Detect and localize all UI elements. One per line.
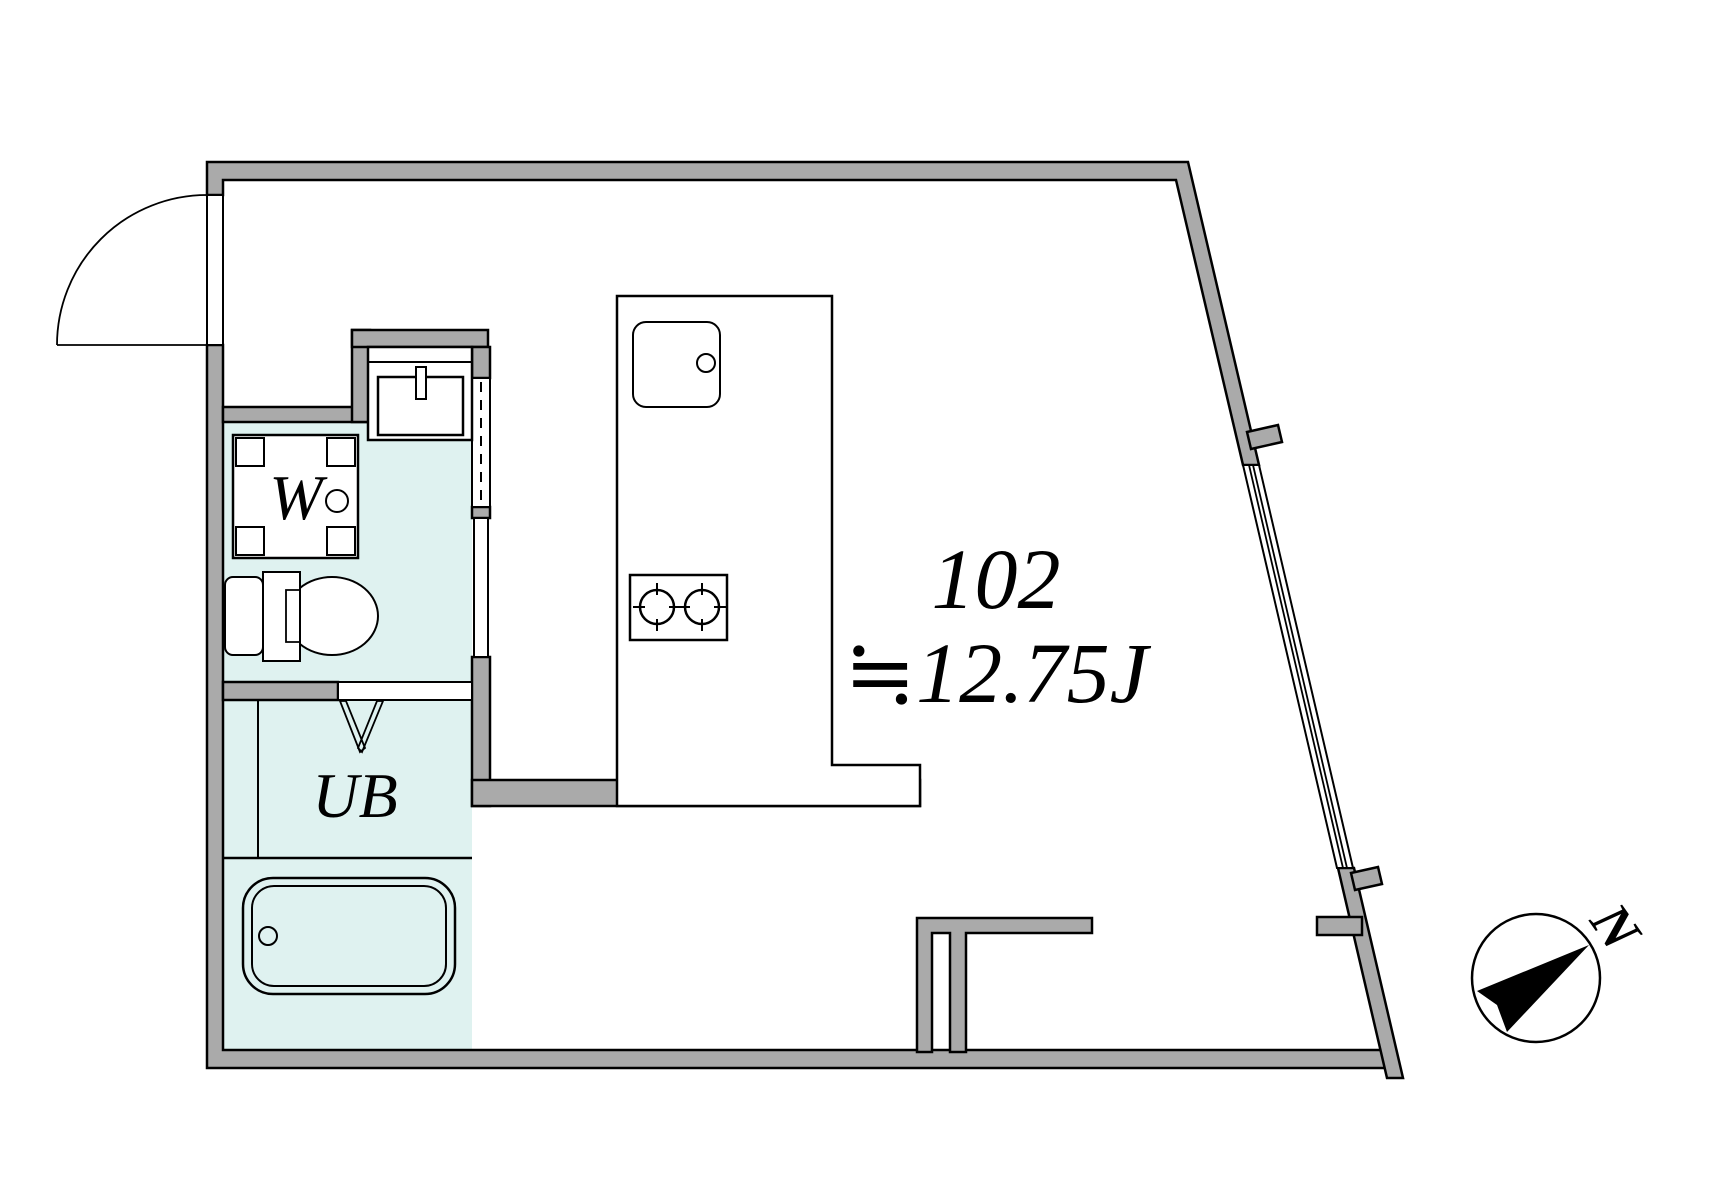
washroom-east-wall-upper [472, 347, 490, 378]
vanity-faucet [416, 367, 426, 399]
door-swing-arc [57, 195, 207, 345]
washer-pan-corner [236, 438, 264, 466]
lower-diagonal-wall [1338, 868, 1403, 1078]
toilet-ub-divider-wall [223, 682, 338, 700]
floorplan-canvas: W UB [0, 0, 1730, 1189]
washer-pan-corner [327, 527, 355, 555]
washroom-top-band-wall [223, 407, 370, 422]
compass-north-label: N [1577, 892, 1653, 964]
washer-drain-icon [326, 490, 348, 512]
window-pane-line [1249, 465, 1343, 868]
stove-burner-icon [640, 590, 674, 624]
toilet-seat-base [263, 572, 300, 661]
kitchen-island [617, 296, 920, 806]
door-panel [207, 195, 223, 345]
sliding-window [1243, 465, 1353, 868]
kitchen-faucet-icon [697, 354, 715, 372]
unit-number-label: 102 [932, 531, 1061, 627]
two-burner-stove [630, 575, 727, 640]
washroom-doorway [474, 518, 488, 657]
compass: N [1472, 892, 1653, 1042]
washroom-openings [472, 378, 490, 657]
vanity-top-wall [352, 330, 488, 347]
window-pane-line [1253, 465, 1347, 868]
ub-door-opening [338, 682, 472, 700]
toilet-tank [225, 577, 263, 655]
washroom-east-wall-mid [472, 507, 490, 518]
window-top-wall-tab [1247, 425, 1282, 449]
window-frame [1243, 465, 1353, 868]
diagonal-interior-wall-stub [1317, 917, 1362, 935]
washing-machine-pan: W [233, 435, 358, 558]
vanity-sink [368, 347, 472, 440]
washer-label: W [269, 462, 328, 533]
washer-pan-corner [327, 438, 355, 466]
unit-bath-label: UB [312, 760, 397, 831]
washer-pan-corner [236, 527, 264, 555]
room-area-label: ≒12.75J [844, 625, 1152, 721]
compass-north-arrow-icon [1477, 945, 1589, 1032]
stove-burner-icon [685, 590, 719, 624]
entrance-door [57, 195, 223, 345]
floorplan-drawing: W UB [0, 0, 1730, 1189]
entry-partition-wall [917, 918, 1092, 1052]
